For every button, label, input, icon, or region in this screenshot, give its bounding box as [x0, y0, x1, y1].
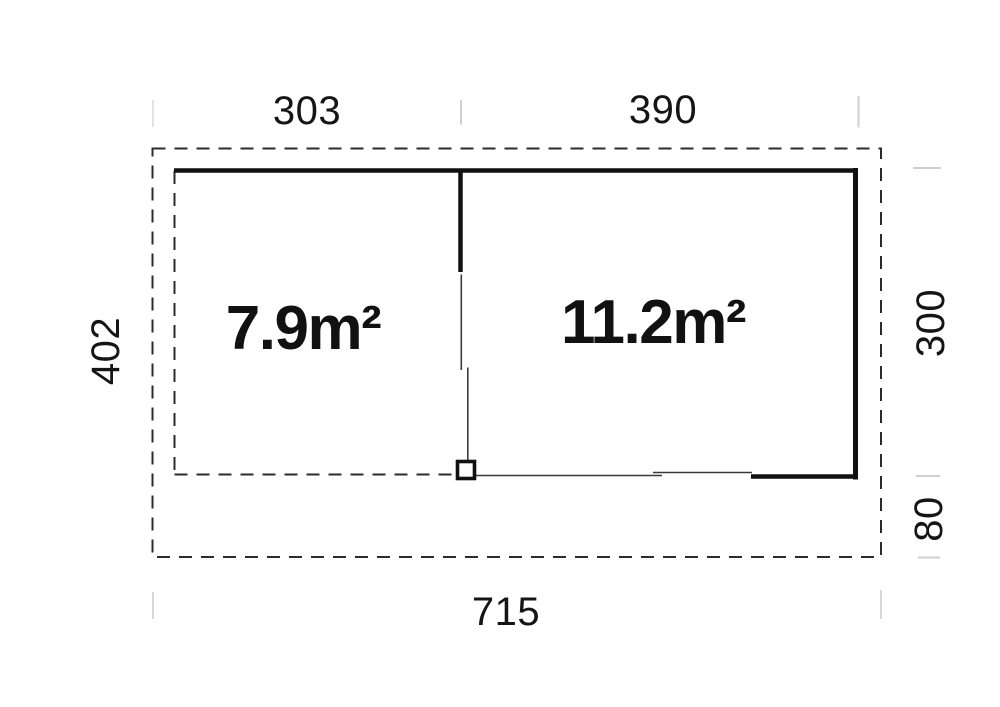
- corner-post: [458, 462, 475, 479]
- dimension-label-right-lower: 80: [909, 496, 949, 542]
- dimension-label-top-right: 390: [629, 90, 697, 130]
- floor-plan-canvas: 303 390 402 300 80 715 7.9m² 11.2m²: [0, 0, 1000, 707]
- dimension-label-bottom: 715: [472, 592, 540, 632]
- room-area-label-left: 7.9m²: [226, 298, 380, 360]
- dimension-label-top-left: 303: [273, 91, 341, 131]
- dimension-label-left: 402: [86, 317, 126, 385]
- room-area-label-right: 11.2m²: [561, 292, 745, 354]
- dimension-label-right-upper: 300: [911, 289, 951, 357]
